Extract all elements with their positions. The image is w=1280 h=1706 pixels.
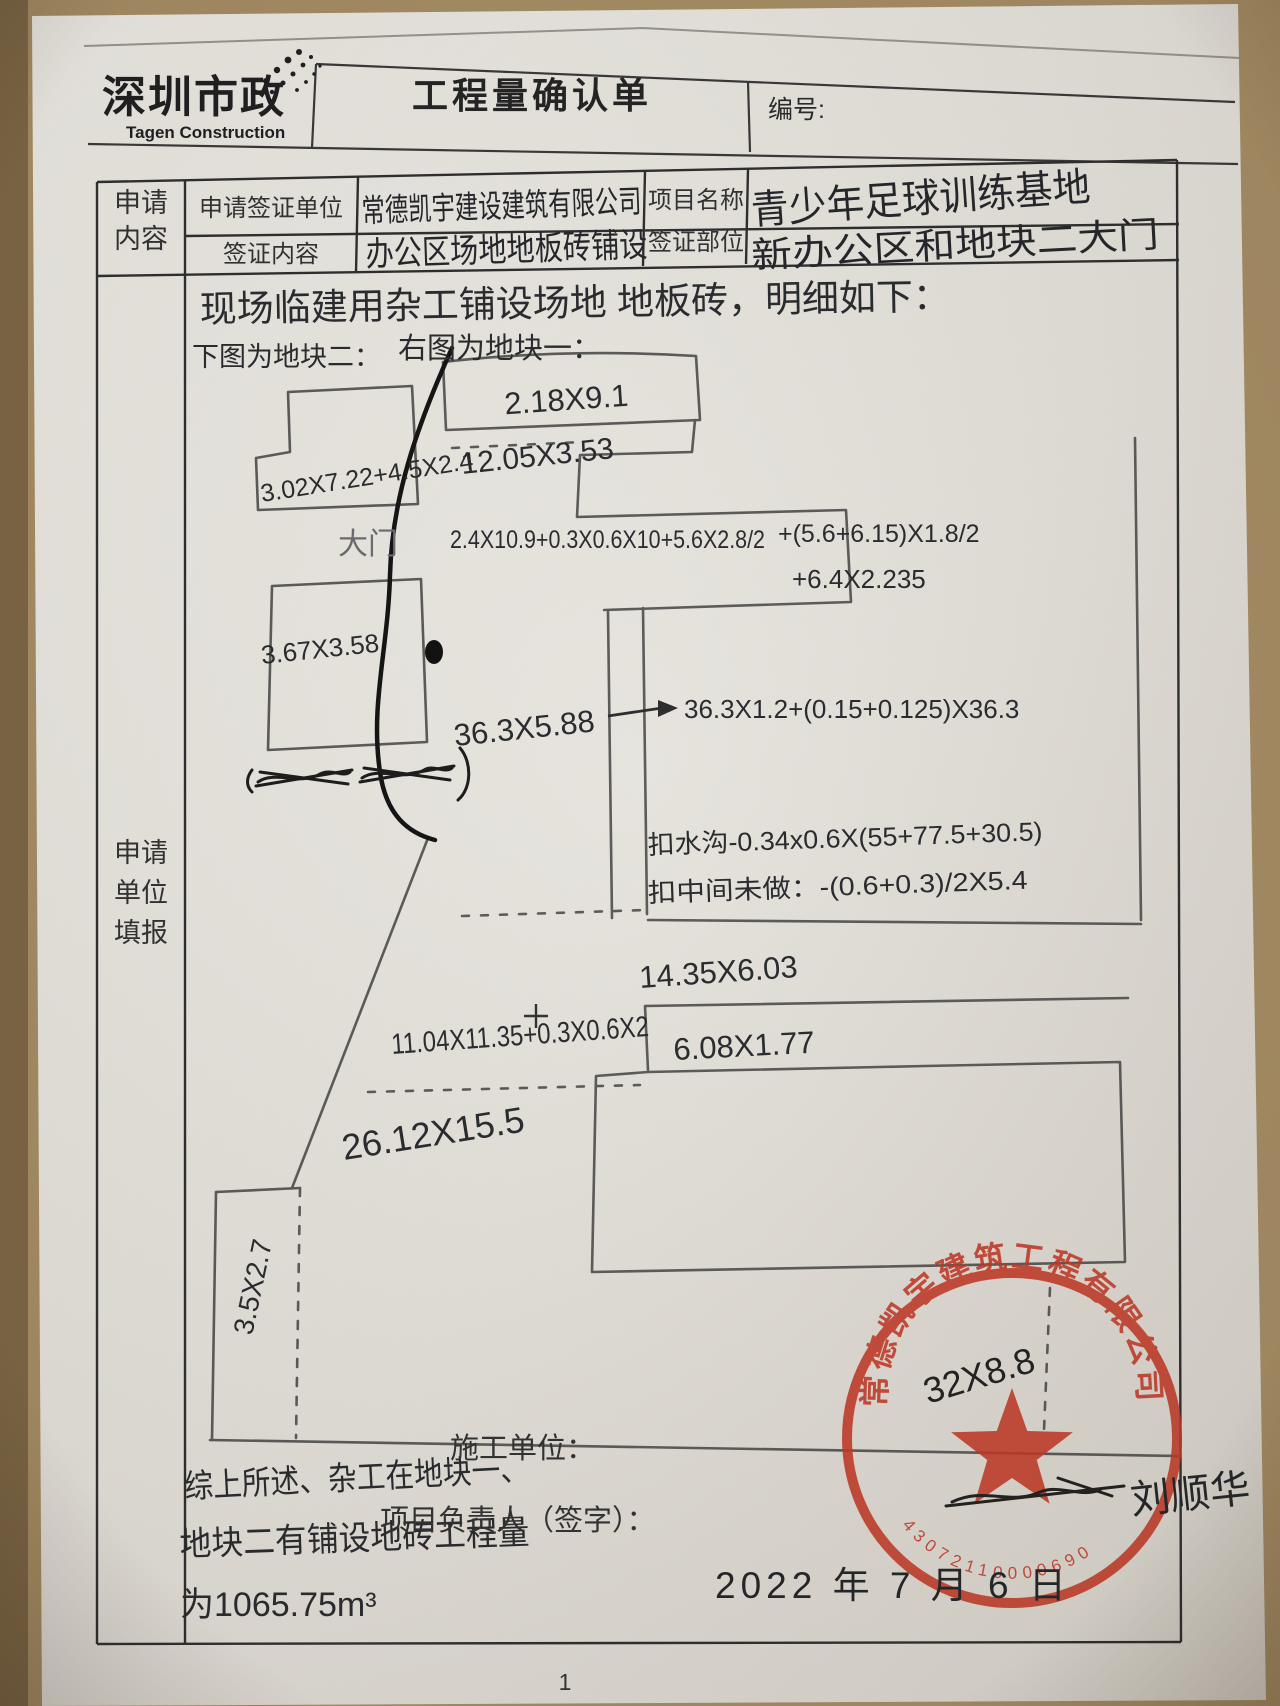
scanned-form-photo: 深圳市政 Tagen Construction 工程量确认单 编号: 申请 内容… xyxy=(0,0,1280,1706)
photo-vignette xyxy=(0,0,1280,1706)
